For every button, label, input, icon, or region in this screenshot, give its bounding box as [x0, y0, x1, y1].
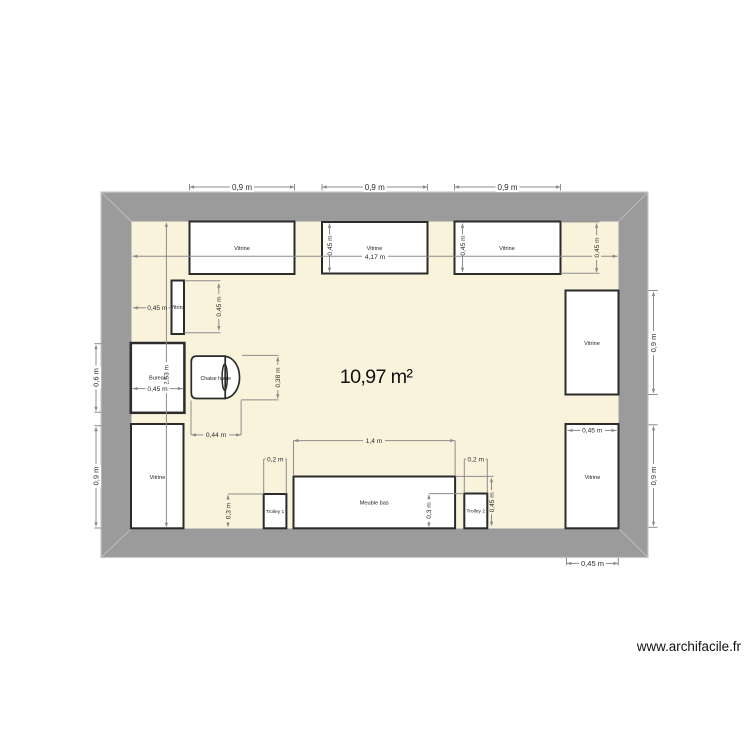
svg-text:0,38 m: 0,38 m: [275, 367, 282, 388]
svg-text:1,4 m: 1,4 m: [366, 438, 383, 445]
svg-text:0,3 m: 0,3 m: [225, 502, 232, 519]
svg-text:10,97 m²: 10,97 m²: [340, 366, 414, 388]
svg-text:www.archifacile.fr: www.archifacile.fr: [636, 639, 742, 654]
svg-text:0,45 m: 0,45 m: [216, 296, 223, 317]
svg-text:0,2 m: 0,2 m: [267, 456, 284, 463]
svg-text:0,6 m: 0,6 m: [92, 368, 101, 387]
svg-text:Vitrine: Vitrine: [234, 246, 250, 252]
svg-text:Trolley 2: Trolley 2: [467, 509, 486, 515]
svg-text:Vitrine: Vitrine: [499, 246, 515, 252]
svg-text:0,45 m: 0,45 m: [460, 235, 467, 256]
svg-text:Chaise haute: Chaise haute: [201, 376, 232, 382]
svg-text:0,2 m: 0,2 m: [467, 456, 484, 463]
svg-text:0,45 m: 0,45 m: [489, 492, 496, 513]
svg-text:Vitrine: Vitrine: [585, 475, 601, 481]
svg-text:Bureau: Bureau: [149, 375, 167, 381]
svg-text:Trolley 1: Trolley 1: [266, 509, 285, 515]
svg-text:Vitrine: Vitrine: [170, 305, 186, 311]
svg-text:0,45 m: 0,45 m: [147, 386, 168, 393]
svg-text:0,45 m: 0,45 m: [581, 559, 604, 568]
svg-text:0,3 m: 0,3 m: [426, 502, 433, 519]
svg-text:0,44 m: 0,44 m: [206, 432, 227, 439]
svg-text:4,17 m: 4,17 m: [365, 254, 386, 261]
svg-text:Meuble bas: Meuble bas: [360, 500, 389, 506]
svg-text:0,9 m: 0,9 m: [92, 467, 101, 486]
svg-text:0,9 m: 0,9 m: [497, 183, 517, 192]
svg-text:0,45 m: 0,45 m: [582, 428, 603, 435]
svg-text:Vitrine: Vitrine: [584, 341, 600, 347]
svg-text:Vitrine: Vitrine: [367, 246, 383, 252]
svg-text:0,45 m: 0,45 m: [327, 235, 334, 256]
svg-text:0,45 m: 0,45 m: [147, 305, 168, 312]
svg-text:0,9 m: 0,9 m: [365, 183, 385, 192]
svg-text:0,9 m: 0,9 m: [649, 334, 658, 353]
svg-text:0,45 m: 0,45 m: [594, 237, 601, 258]
svg-text:0,9 m: 0,9 m: [649, 467, 658, 486]
svg-text:0,9 m: 0,9 m: [232, 183, 252, 192]
svg-text:Vitrine: Vitrine: [150, 475, 166, 481]
